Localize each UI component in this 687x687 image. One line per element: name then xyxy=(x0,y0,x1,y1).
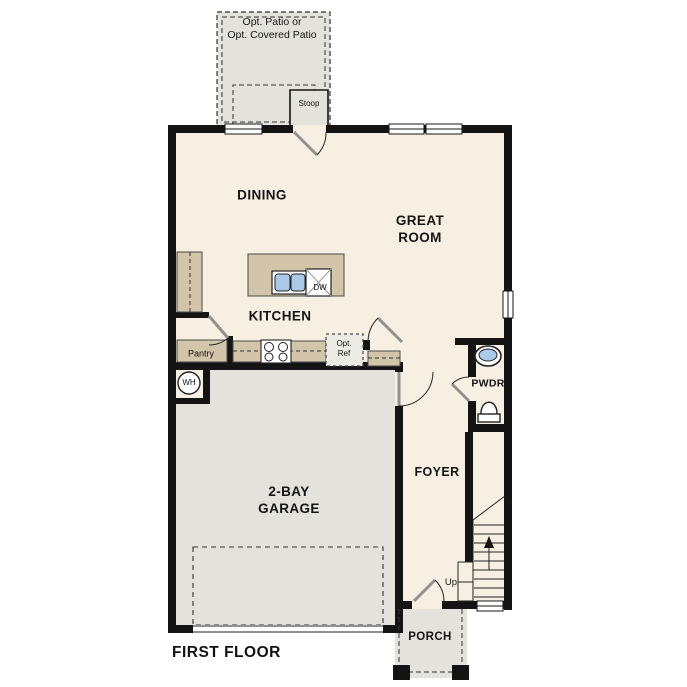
garage-floor xyxy=(176,370,395,625)
window xyxy=(225,124,262,134)
water-heater-icon xyxy=(178,372,200,394)
floor-plan: Opt. Patio or Opt. Covered Patio Stoop D… xyxy=(0,0,687,687)
dishwasher-icon xyxy=(306,269,331,296)
page-title: FIRST FLOOR xyxy=(172,644,281,662)
garage-door-opening xyxy=(193,625,383,633)
window xyxy=(477,601,503,611)
kitchen-sink-icon xyxy=(272,271,308,294)
porch-post xyxy=(393,665,410,680)
window xyxy=(426,124,462,134)
floor-plan-canvas xyxy=(0,0,687,687)
window xyxy=(389,124,424,134)
optional-refrigerator xyxy=(326,334,363,366)
window xyxy=(503,291,513,318)
cooktop-icon xyxy=(261,340,291,363)
stoop-structure xyxy=(290,90,328,127)
porch-post xyxy=(452,665,469,680)
powder-sink-icon xyxy=(475,346,501,366)
